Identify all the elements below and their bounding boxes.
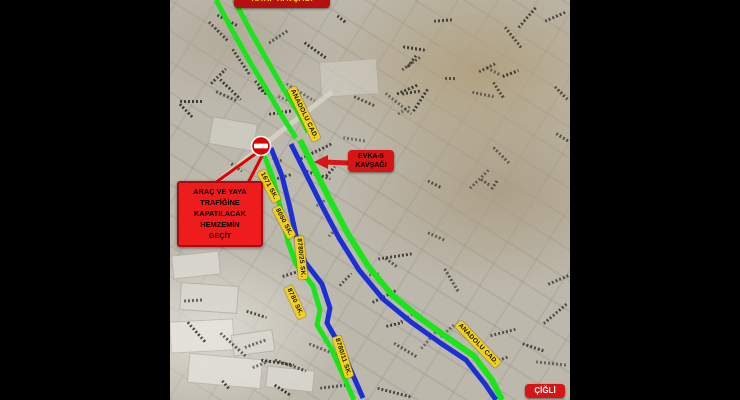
warning-line: ARAÇ VE YAYA bbox=[181, 187, 259, 198]
warning-line: GEÇİT bbox=[181, 231, 259, 242]
warning-line: KAPATILACAK bbox=[181, 209, 259, 220]
warning-line: TRAFİĞİNE bbox=[181, 198, 259, 209]
district-label-cigli: ÇİĞLİ bbox=[525, 384, 565, 398]
evka5-junction-line1: EVKA-5 bbox=[349, 152, 393, 161]
warning-line: HEMZEMİN bbox=[181, 220, 259, 231]
evka5-junction-line2: KAVŞAĞI bbox=[349, 161, 393, 170]
no-entry-sign-icon bbox=[252, 137, 271, 156]
junction-banner-top: KATİP KAVŞAĞI bbox=[234, 0, 330, 8]
evka5-junction-label: EVKA-5 KAVŞAĞI bbox=[348, 150, 394, 172]
open-route-upper-east bbox=[234, 0, 308, 132]
closure-warning-box: ARAÇ VE YAYA TRAFİĞİNE KAPATILACAK HEMZE… bbox=[177, 181, 263, 247]
open-route-upper-west bbox=[216, 0, 296, 138]
screenshot-stage: ANADOLU CAD. 1671 SK. 8050 SK. 8780/25 S… bbox=[0, 0, 740, 400]
satellite-map: ANADOLU CAD. 1671 SK. 8050 SK. 8780/25 S… bbox=[170, 0, 570, 400]
open-route-anadolu bbox=[300, 140, 502, 400]
